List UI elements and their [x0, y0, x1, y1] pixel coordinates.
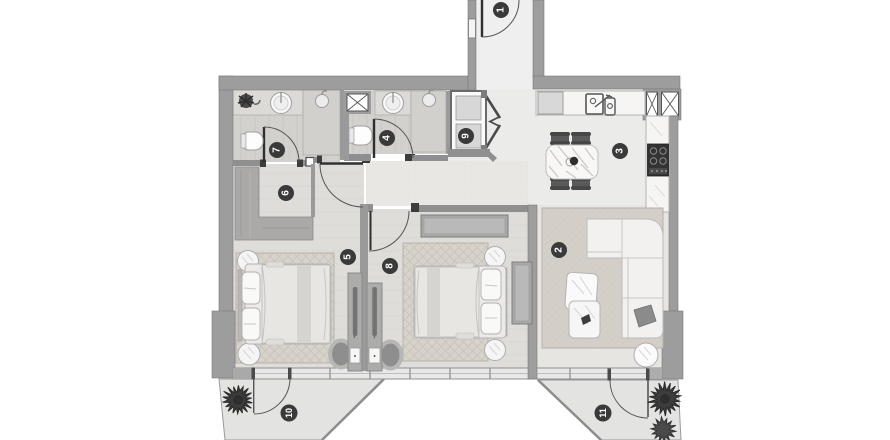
svg-text:3: 3: [615, 148, 626, 154]
svg-text:4: 4: [382, 135, 393, 141]
svg-text:9: 9: [461, 133, 472, 139]
svg-text:11: 11: [598, 408, 608, 418]
svg-text:2: 2: [554, 247, 565, 253]
svg-text:10: 10: [284, 408, 294, 418]
svg-text:6: 6: [281, 190, 292, 196]
svg-text:7: 7: [272, 147, 283, 153]
svg-text:5: 5: [343, 254, 354, 260]
svg-text:8: 8: [385, 263, 396, 269]
svg-text:1: 1: [496, 7, 507, 13]
